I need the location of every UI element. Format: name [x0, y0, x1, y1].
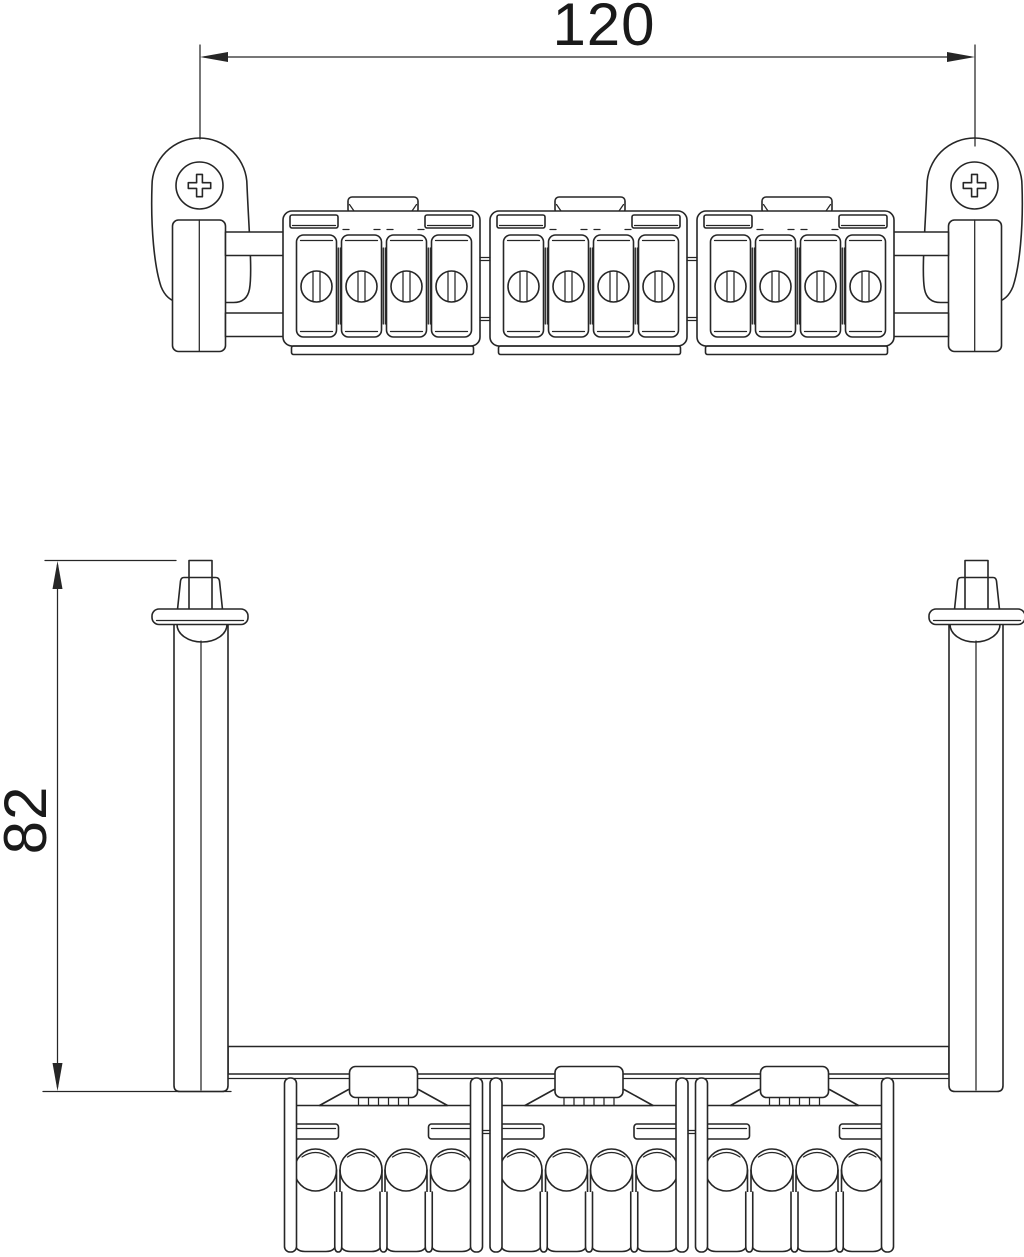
front-gap-bridges	[483, 1131, 696, 1134]
terminal-block-front-2	[490, 1067, 688, 1253]
terminal-block-top-1	[283, 197, 480, 355]
terminal-block-top-3	[697, 197, 894, 355]
terminal-strip-drawing: 120 82	[0, 0, 1024, 1257]
terminal-block-front-3	[696, 1067, 894, 1253]
dimension-height-label: 82	[0, 786, 59, 855]
dimension-width-label: 120	[552, 0, 655, 58]
mounting-lug-left	[152, 138, 284, 351]
drawing-page: 120 82	[0, 0, 1024, 1257]
hanger-post-right	[929, 561, 1024, 1092]
dimension-width: 120	[200, 0, 975, 146]
mounting-lug-right	[891, 138, 1023, 351]
arrowhead-bottom	[53, 1063, 63, 1091]
front-view	[152, 561, 1024, 1253]
arrowhead-top	[53, 561, 63, 589]
hanger-post-left	[152, 561, 248, 1092]
arrowhead-right	[947, 52, 975, 62]
top-view	[152, 138, 1023, 354]
terminal-block-front-1	[285, 1067, 483, 1253]
terminal-block-top-2	[490, 197, 687, 355]
extension-lines	[200, 45, 975, 146]
arrowhead-left	[200, 52, 228, 62]
